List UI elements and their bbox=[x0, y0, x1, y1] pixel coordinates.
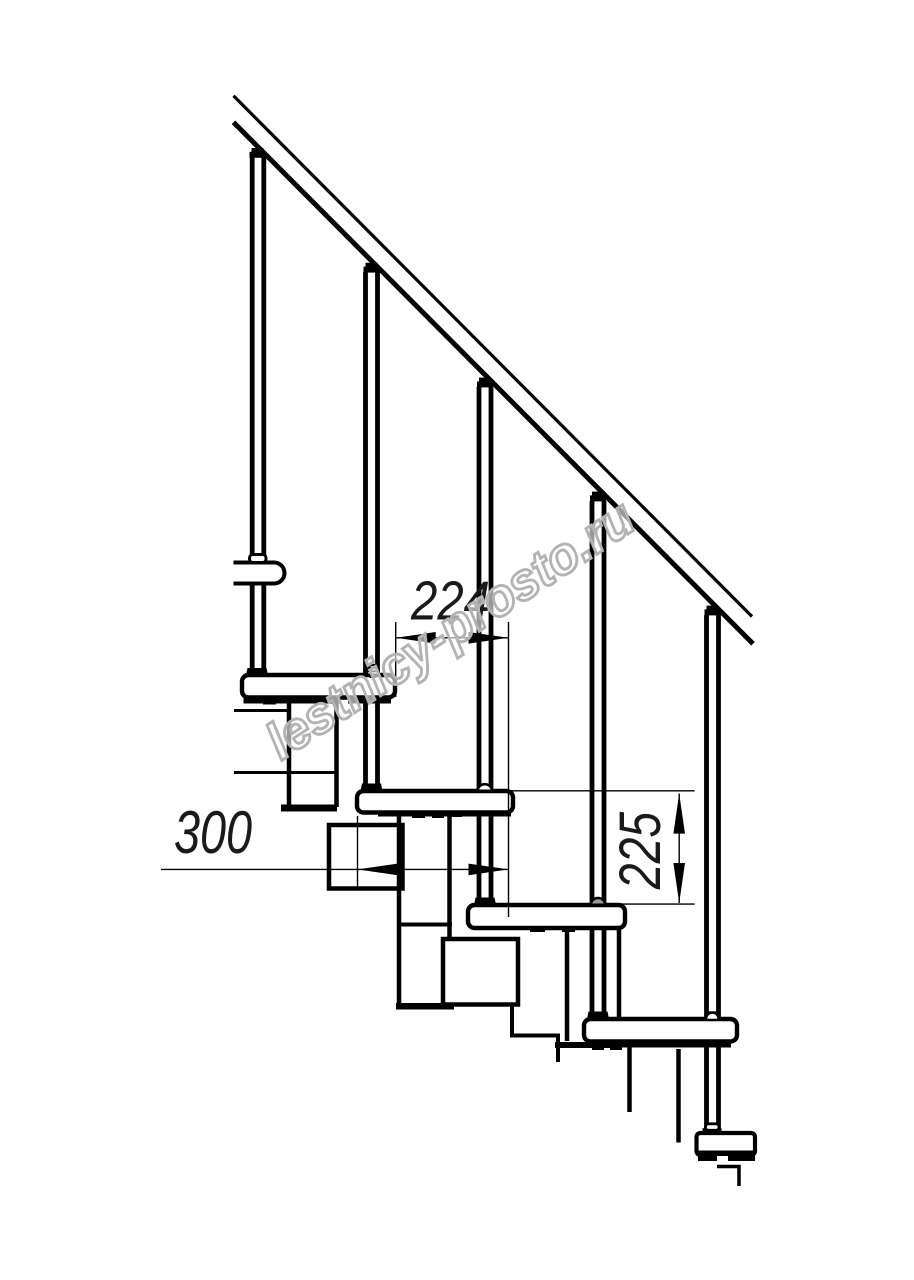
svg-text:300: 300 bbox=[174, 799, 252, 866]
svg-text:225: 225 bbox=[608, 811, 673, 890]
